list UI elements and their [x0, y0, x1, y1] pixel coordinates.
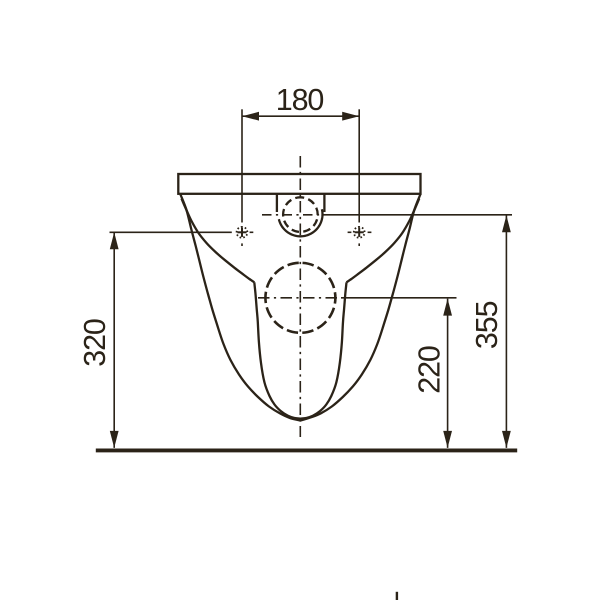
- svg-text:220: 220: [412, 346, 446, 394]
- svg-text:180: 180: [276, 83, 324, 117]
- svg-text:320: 320: [78, 319, 112, 367]
- svg-text:355: 355: [470, 301, 504, 349]
